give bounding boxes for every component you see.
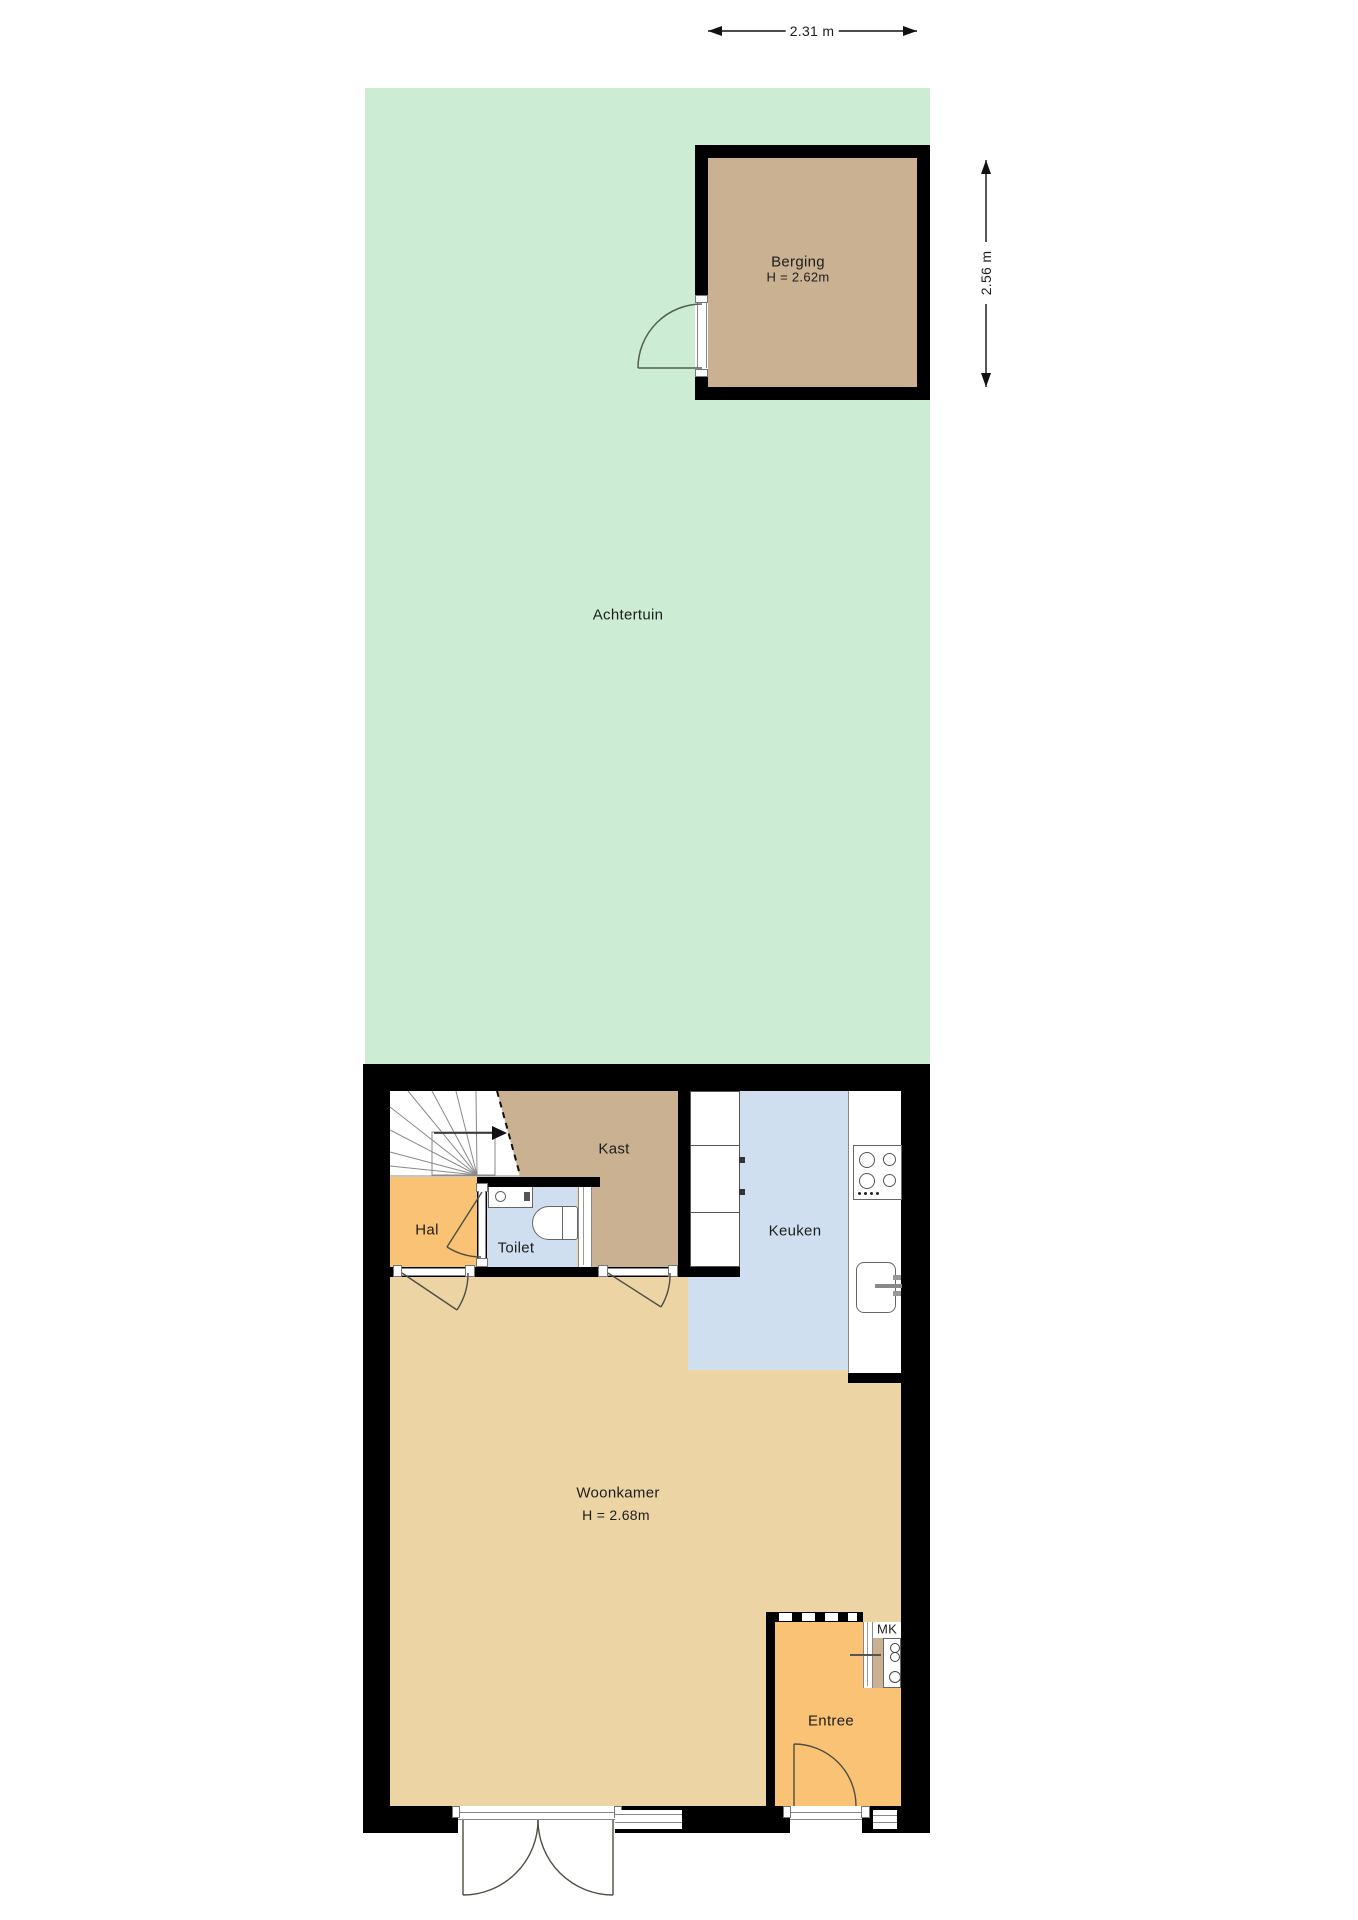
cabinet-handle	[739, 1189, 745, 1195]
kitchen-faucet-handle	[893, 1291, 901, 1296]
front-door-jamb-right	[861, 1806, 870, 1818]
wall-entree-left	[766, 1612, 775, 1806]
kitchen-counter	[848, 1091, 901, 1373]
overhead-dashed-line	[779, 1613, 857, 1621]
arrow-head-down-icon	[981, 373, 991, 387]
berging-door-jamb-bottom	[695, 369, 708, 377]
room-label-berging: Berging	[771, 254, 825, 271]
kast-door-jamb-right	[668, 1265, 678, 1277]
room-label-entree: Entree	[808, 1713, 854, 1730]
kitchen-faucet-icon	[875, 1284, 902, 1288]
room-label-woonkamer-height: H = 2.68m	[582, 1507, 650, 1523]
meter-tick-line	[850, 1654, 881, 1656]
kitchen-faucet-handle	[893, 1275, 901, 1280]
room-label-keuken: Keuken	[769, 1223, 822, 1240]
toilet-service-door	[578, 1187, 592, 1267]
stove-icon	[853, 1145, 902, 1200]
dimension-label-depth: 2.56 m	[978, 247, 994, 300]
toilet-door-jamb-bottom	[476, 1258, 488, 1267]
berging-door-jamb-top	[695, 295, 708, 303]
room-label-berging-height: H = 2.62m	[766, 270, 829, 285]
meter-box-icon	[883, 1638, 901, 1688]
french-door-threshold	[458, 1812, 615, 1820]
room-label-achtertuin: Achtertuin	[593, 607, 664, 624]
front-door-jamb-left	[783, 1806, 791, 1818]
kast-door-threshold	[608, 1268, 668, 1276]
sidelight-glazing	[873, 1815, 897, 1823]
arrow-head-left-icon	[708, 26, 722, 36]
french-door-jamb-left	[452, 1806, 460, 1818]
berging-door-leaf	[697, 303, 707, 368]
mk-closet-floor	[873, 1638, 883, 1688]
arrow-head-right-icon	[903, 26, 917, 36]
wall-kast-keuken	[678, 1091, 690, 1277]
toilet-bowl-icon	[532, 1206, 578, 1240]
cabinet-handle	[739, 1157, 745, 1163]
kitchen-cabinet-divider	[690, 1212, 740, 1213]
hal-door-threshold	[402, 1268, 465, 1276]
kast-door-jamb-left	[598, 1265, 608, 1277]
kitchen-cabinet-divider	[690, 1145, 740, 1146]
room-label-woonkamer: Woonkamer	[576, 1485, 659, 1502]
wall-counter-end	[848, 1373, 901, 1383]
dimension-label-width: 2.31 m	[786, 23, 839, 39]
room-label-kast: Kast	[598, 1141, 629, 1158]
kitchen-cabinet-column	[690, 1091, 740, 1267]
arrow-head-up-icon	[981, 160, 991, 174]
hal-door-jamb-right	[465, 1265, 475, 1277]
room-label-hal: Hal	[415, 1222, 438, 1239]
front-door-threshold	[790, 1812, 862, 1820]
wall-toilet-top	[477, 1177, 600, 1187]
room-label-toilet: Toilet	[498, 1240, 535, 1257]
floor-plan-canvas: Achtertuin Berging H = 2.62m Kast Hal To…	[0, 0, 1358, 1920]
toilet-washbasin-icon	[488, 1186, 533, 1208]
hal-door-jamb-left	[393, 1265, 402, 1277]
room-label-mk: MK	[877, 1622, 897, 1637]
toilet-door-leaf	[478, 1191, 486, 1263]
window-glazing	[615, 1814, 682, 1823]
